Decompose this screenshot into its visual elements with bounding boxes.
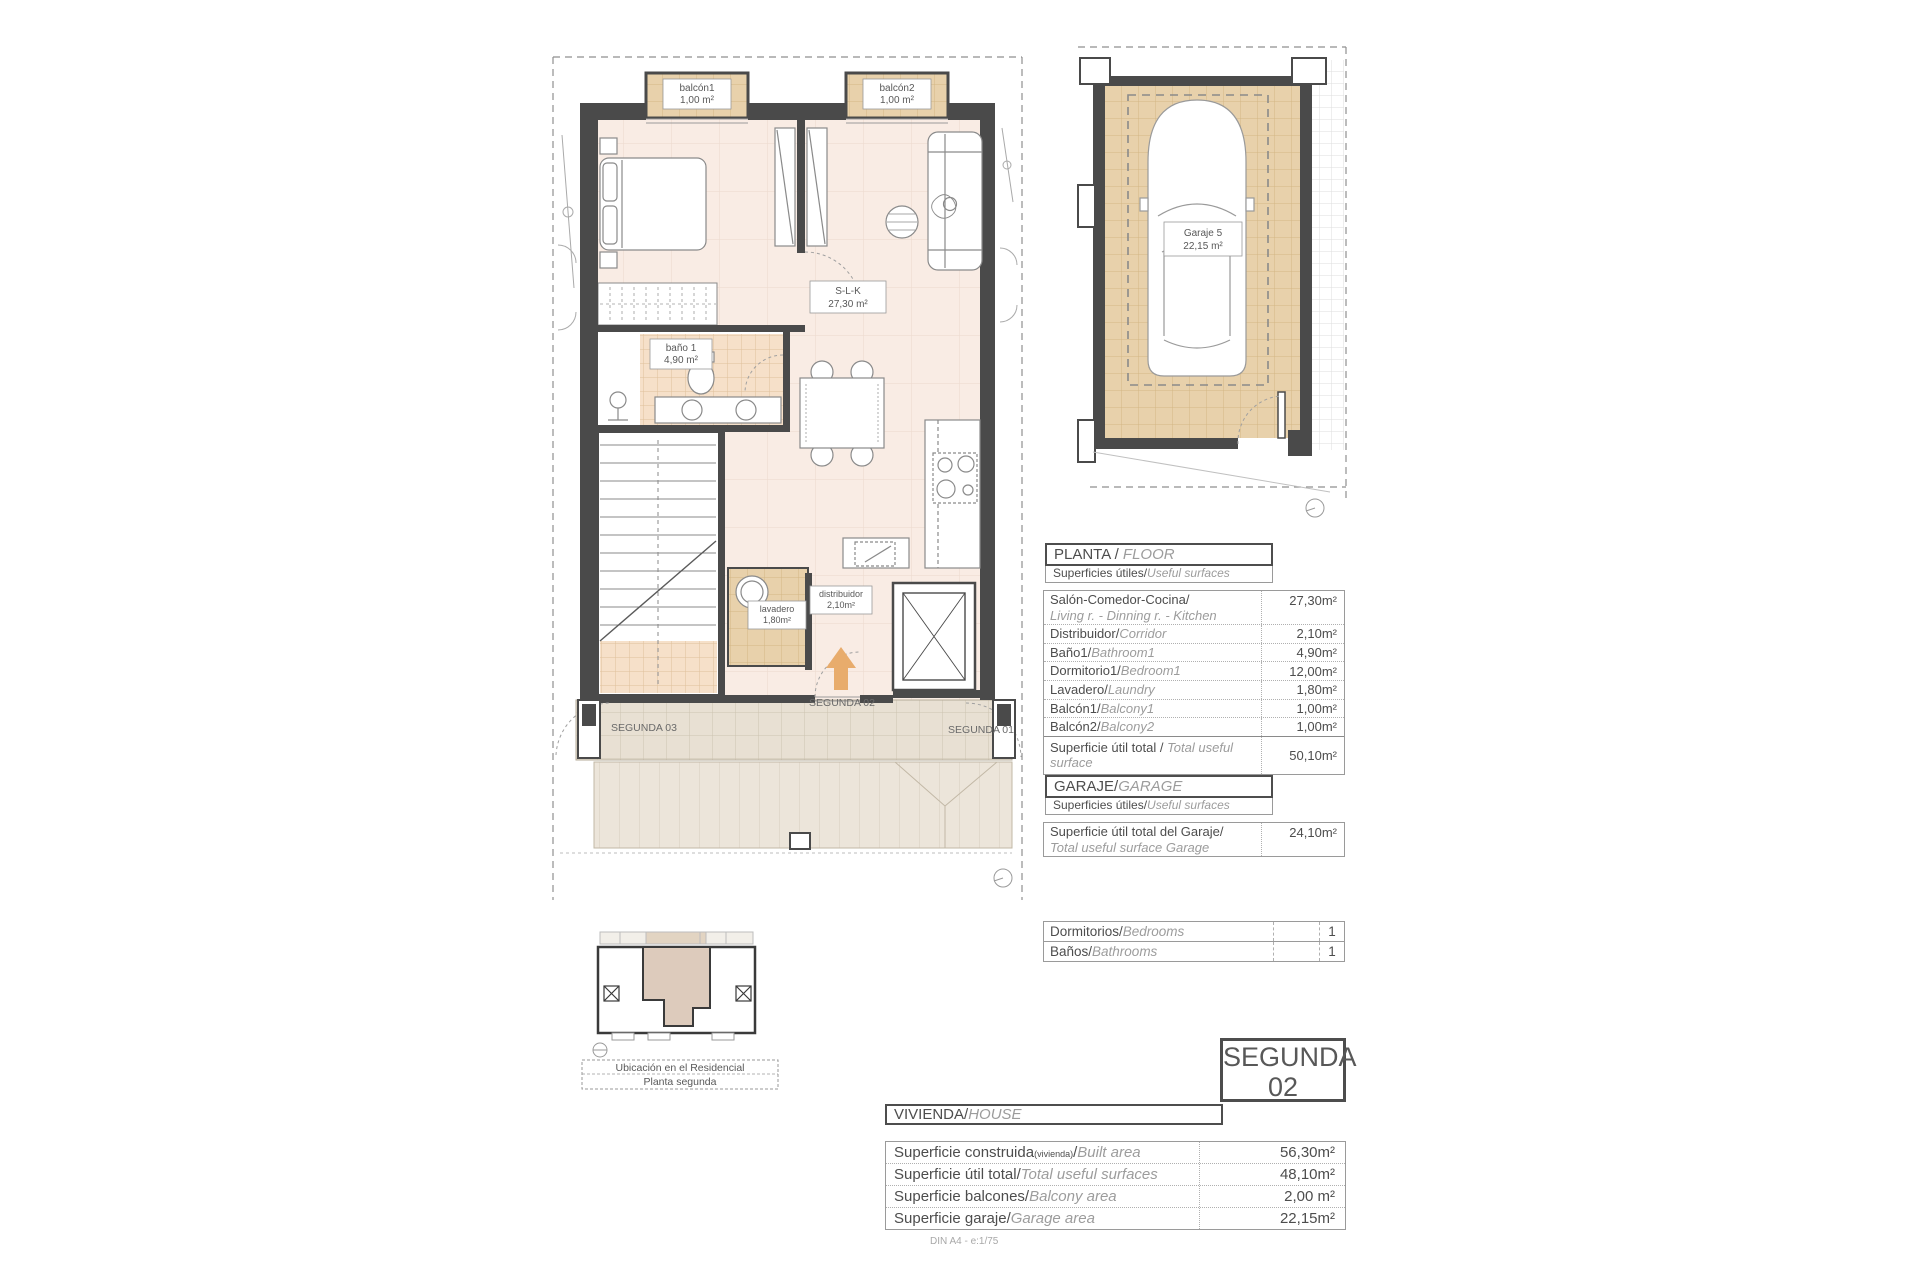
row-value: 48,10m² xyxy=(1199,1164,1345,1185)
corridor-label: distribuidor xyxy=(819,589,863,599)
garage-name: Garaje 5 xyxy=(1184,228,1223,239)
row-label-es: Superficie útil total/ xyxy=(894,1166,1021,1183)
row-value: 1,00m² xyxy=(1261,700,1344,718)
row-label-es: Baños/ xyxy=(1050,944,1092,959)
row-label-es: Balcón2/ xyxy=(1050,719,1101,734)
balcony1-label: balcón1 xyxy=(679,83,714,94)
row-value: 1,00m² xyxy=(1261,718,1344,736)
row-label-en: Laundry xyxy=(1108,682,1155,697)
table-row: Baño1/Bathroom1 4,90m² xyxy=(1044,643,1344,662)
row-label-en: Balcony2 xyxy=(1101,719,1154,734)
house-table-title-en: HOUSE xyxy=(968,1106,1021,1123)
row-label-en: Total useful surface Garage xyxy=(1050,840,1255,856)
floor-table-title-en: FLOOR xyxy=(1123,546,1175,563)
table-row: Lavadero/Laundry 1,80m² xyxy=(1044,680,1344,699)
balcony2-label: balcón2 xyxy=(879,83,914,94)
laundry-area: 1,80m² xyxy=(763,615,791,625)
minimap-building xyxy=(598,947,755,1040)
table-row: Balcón1/Balcony1 1,00m² xyxy=(1044,699,1344,718)
house-table-header: VIVIENDA/HOUSE xyxy=(885,1104,1223,1125)
garage-table-header: GARAJE/GARAGE xyxy=(1045,775,1273,798)
table-row: Superficie garaje/Garage area 22,15m² xyxy=(886,1207,1345,1229)
row-value: 1 xyxy=(1319,942,1344,961)
row-spacer xyxy=(1273,942,1319,961)
unit-label-left: SEGUNDA 03 xyxy=(611,722,677,734)
table-row: Balcón2/Balcony2 1,00m² xyxy=(1044,717,1344,736)
row-label-small: (vivienda) xyxy=(1034,1149,1073,1159)
row-value: 24,10m² xyxy=(1261,823,1344,856)
row-value: 27,30m² xyxy=(1261,591,1344,624)
garage-table-subtitle-en: Useful surfaces xyxy=(1147,798,1230,812)
garage-plan-drawing: Garaje 5 22,15 m² xyxy=(1070,40,1360,525)
balcony1-area: 1,00 m² xyxy=(680,95,715,106)
row-label-en: Bathrooms xyxy=(1092,944,1157,959)
unit-label-right: SEGUNDA 01 xyxy=(948,724,1014,736)
slk-area: 27,30 m² xyxy=(828,299,868,310)
total-value: 50,10m² xyxy=(1261,737,1344,774)
table-row: Superficie útil total/Total useful surfa… xyxy=(886,1163,1345,1185)
minimap-top-strip xyxy=(600,932,753,944)
location-map: Ubicación en el Residencial Planta segun… xyxy=(575,928,790,1093)
row-label-es: Baño1/ xyxy=(1050,645,1091,660)
row-label-es: Superficie balcones/ xyxy=(894,1188,1029,1205)
slk-label: S-L-K xyxy=(835,286,861,297)
row-label-es: Balcón1/ xyxy=(1050,701,1101,716)
floor-table-title: PLANTA / xyxy=(1054,546,1123,563)
unit-badge-number: 02 xyxy=(1223,1072,1343,1102)
total-label-es: Superficie útil total / xyxy=(1050,740,1167,755)
row-label-en: Bedroom1 xyxy=(1121,663,1181,678)
bath-label: baño 1 xyxy=(666,343,697,354)
row-label-en: Balcony1 xyxy=(1101,701,1154,716)
row-spacer xyxy=(1273,922,1319,941)
row-value: 2,00 m² xyxy=(1199,1186,1345,1207)
garage-table-subtitle: Superficies útiles/ xyxy=(1053,798,1147,812)
unit-badge: SEGUNDA 02 xyxy=(1220,1038,1346,1102)
minimap-caption-line2: Planta segunda xyxy=(644,1076,717,1088)
row-label-es: Dormitorio1/ xyxy=(1050,663,1121,678)
row-label-en: Built area xyxy=(1077,1144,1140,1161)
garage-area: 22,15 m² xyxy=(1183,241,1223,252)
row-value: 22,15m² xyxy=(1199,1208,1345,1229)
sheet-scale-note: DIN A4 - e:1/75 xyxy=(930,1236,998,1247)
row-value: 2,10m² xyxy=(1261,625,1344,643)
garage-table-subheader: Superficies útiles/Useful surfaces xyxy=(1045,798,1273,815)
counts-table: Dormitorios/Bedrooms 1 Baños/Bathrooms 1 xyxy=(1043,921,1345,962)
row-value: 56,30m² xyxy=(1199,1142,1345,1163)
row-label-en: Bathroom1 xyxy=(1091,645,1155,660)
garage-label: Garaje 5 22,15 m² xyxy=(1164,222,1242,256)
row-label-en: Total useful surfaces xyxy=(1021,1166,1158,1183)
floor-plan-drawing: balcón1 1,00 m² balcón2 1,00 m² S-L-K 27… xyxy=(540,40,1040,910)
table-row: Superficie construida(vivienda)/Built ar… xyxy=(886,1142,1345,1163)
corridor-area: 2,10m² xyxy=(827,600,855,610)
row-label-es: Superficie útil total del Garaje/ xyxy=(1050,824,1255,840)
bath-area: 4,90 m² xyxy=(664,355,699,366)
garage-table-title-en: GARAGE xyxy=(1118,778,1182,795)
garage-table: Superficie útil total del Garaje/Total u… xyxy=(1043,822,1345,857)
unit-badge-name: SEGUNDA xyxy=(1223,1042,1343,1072)
row-label-en: Living r. - Dinning r. - Kitchen xyxy=(1050,608,1255,624)
table-row: Dormitorios/Bedrooms 1 xyxy=(1044,922,1344,941)
table-row: Salón-Comedor-Cocina/Living r. - Dinning… xyxy=(1044,591,1344,624)
minimap-caption-line1: Ubicación en el Residencial xyxy=(616,1062,745,1074)
floor-table-subtitle: Superficies útiles/ xyxy=(1053,566,1147,580)
row-value: 4,90m² xyxy=(1261,644,1344,662)
row-value: 1,80m² xyxy=(1261,681,1344,699)
floor-table-header: PLANTA / FLOOR xyxy=(1045,543,1273,566)
roof-strip xyxy=(560,762,1012,853)
table-total-row: Superficie útil total / Total useful sur… xyxy=(1044,736,1344,774)
minimap-caption: Ubicación en el Residencial Planta segun… xyxy=(582,1060,778,1089)
compass-icon xyxy=(994,869,1012,887)
table-row: Superficie balcones/Balcony area 2,00 m² xyxy=(886,1185,1345,1207)
table-row: Baños/Bathrooms 1 xyxy=(1044,941,1344,961)
garage-compass-icon xyxy=(1306,499,1324,517)
house-table-title: VIVIENDA/ xyxy=(894,1106,968,1123)
plan-sheet: balcón1 1,00 m² balcón2 1,00 m² S-L-K 27… xyxy=(0,0,1920,1280)
row-label-es: Superficie construida xyxy=(894,1144,1034,1161)
row-label-es: Dormitorios/ xyxy=(1050,924,1123,939)
row-value: 12,00m² xyxy=(1261,662,1344,680)
ramp-line xyxy=(1093,452,1330,492)
garage-side-grid xyxy=(1312,60,1344,450)
row-label-es: Salón-Comedor-Cocina/ xyxy=(1050,592,1255,608)
row-label-en: Balcony area xyxy=(1029,1188,1117,1205)
table-row: Dormitorio1/Bedroom1 12,00m² xyxy=(1044,661,1344,680)
row-label-en: Bedrooms xyxy=(1123,924,1185,939)
wardrobe-strip xyxy=(598,283,717,325)
house-table: Superficie construida(vivienda)/Built ar… xyxy=(885,1141,1346,1230)
laundry-label: lavadero xyxy=(760,604,795,614)
floor-table: Salón-Comedor-Cocina/Living r. - Dinning… xyxy=(1043,590,1345,775)
unit-label-center: SEGUNDA 02 xyxy=(809,697,875,709)
row-label-es: Superficie garaje/ xyxy=(894,1210,1011,1227)
balcony2-area: 1,00 m² xyxy=(880,95,915,106)
row-label-en: Corridor xyxy=(1119,626,1166,641)
row-label-es: Distribuidor/ xyxy=(1050,626,1119,641)
floor-table-subtitle-en: Useful surfaces xyxy=(1147,566,1230,580)
minimap-compass-icon xyxy=(593,1043,607,1057)
row-label-en: Garage area xyxy=(1011,1210,1095,1227)
table-row: Superficie útil total del Garaje/Total u… xyxy=(1044,823,1344,856)
floor-table-subheader: Superficies útiles/Useful surfaces xyxy=(1045,566,1273,583)
garage-table-title: GARAJE/ xyxy=(1054,778,1118,795)
table-row: Distribuidor/Corridor 2,10m² xyxy=(1044,624,1344,643)
row-label-es: Lavadero/ xyxy=(1050,682,1108,697)
row-value: 1 xyxy=(1319,922,1344,941)
